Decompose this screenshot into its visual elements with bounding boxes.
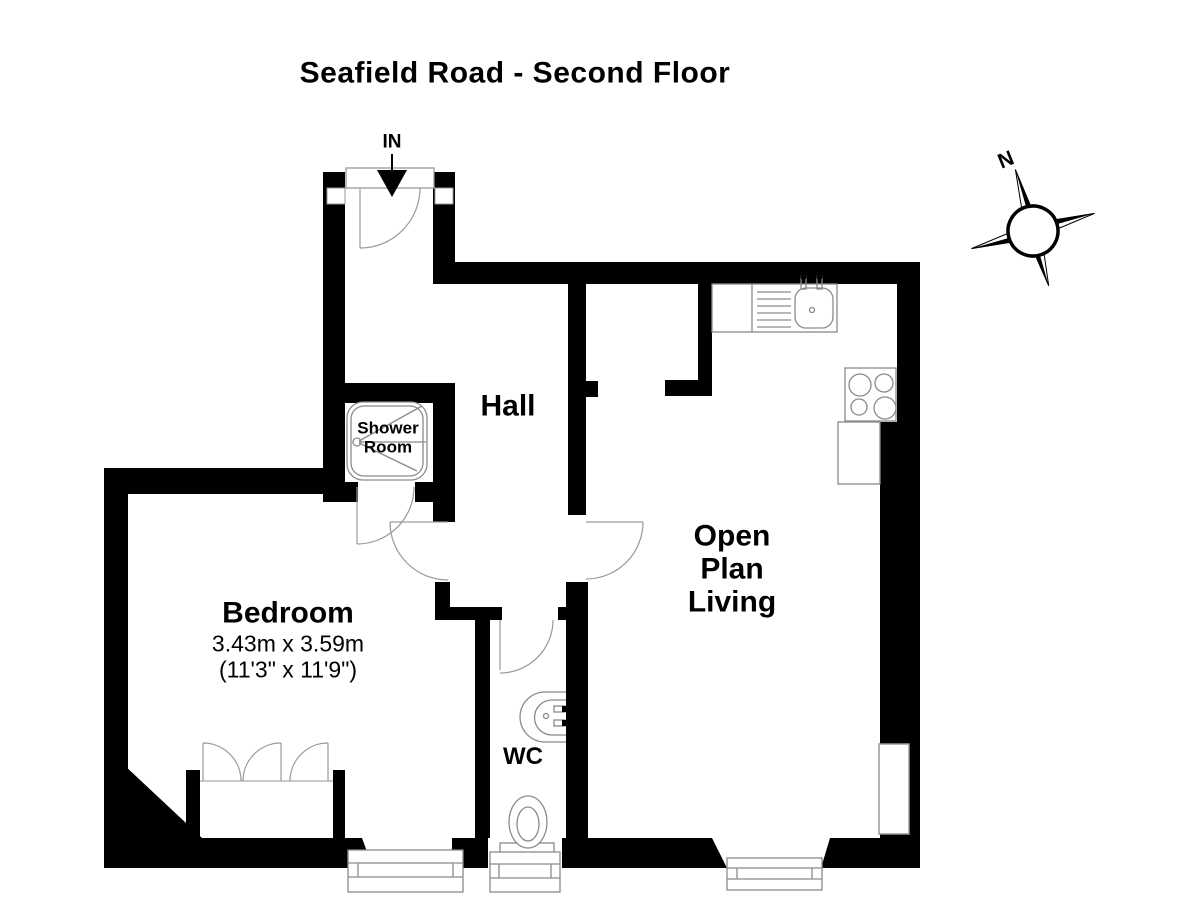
bedroom-dimensions-imperial: (11'3" x 11'9") [219, 657, 357, 682]
bedroom-window [348, 850, 463, 892]
room-label-shower-room: Shower Room [357, 419, 418, 456]
room-label-wc: WC [503, 744, 543, 770]
bedroom-dimensions-metric: 3.43m x 3.59m [212, 631, 364, 656]
wc-basin-icon [520, 692, 566, 742]
room-label-open-plan-living: Open Plan Living [688, 520, 776, 619]
page-title: Seafield Road - Second Floor [300, 57, 731, 90]
room-label-hall: Hall [480, 390, 535, 423]
entrance-label: IN [383, 133, 402, 154]
living-room-window [727, 858, 822, 890]
living-room-door [586, 522, 643, 579]
kitchen-hob-icon [845, 368, 896, 421]
shower-room-door [357, 487, 414, 544]
right-wall-recess-window [879, 744, 909, 834]
room-label-bedroom: Bedroom [222, 597, 354, 630]
floor-plan-drawing [0, 0, 1200, 900]
entry-arrow-icon [377, 154, 407, 197]
bay-cupboard-doors [200, 743, 333, 781]
bedroom-door [390, 522, 448, 580]
wc-window [490, 852, 560, 892]
north-compass-icon [954, 152, 1110, 304]
floor-plan-page: Seafield Road - Second Floor IN Hall Sho… [0, 0, 1200, 900]
wc-door [500, 620, 553, 673]
